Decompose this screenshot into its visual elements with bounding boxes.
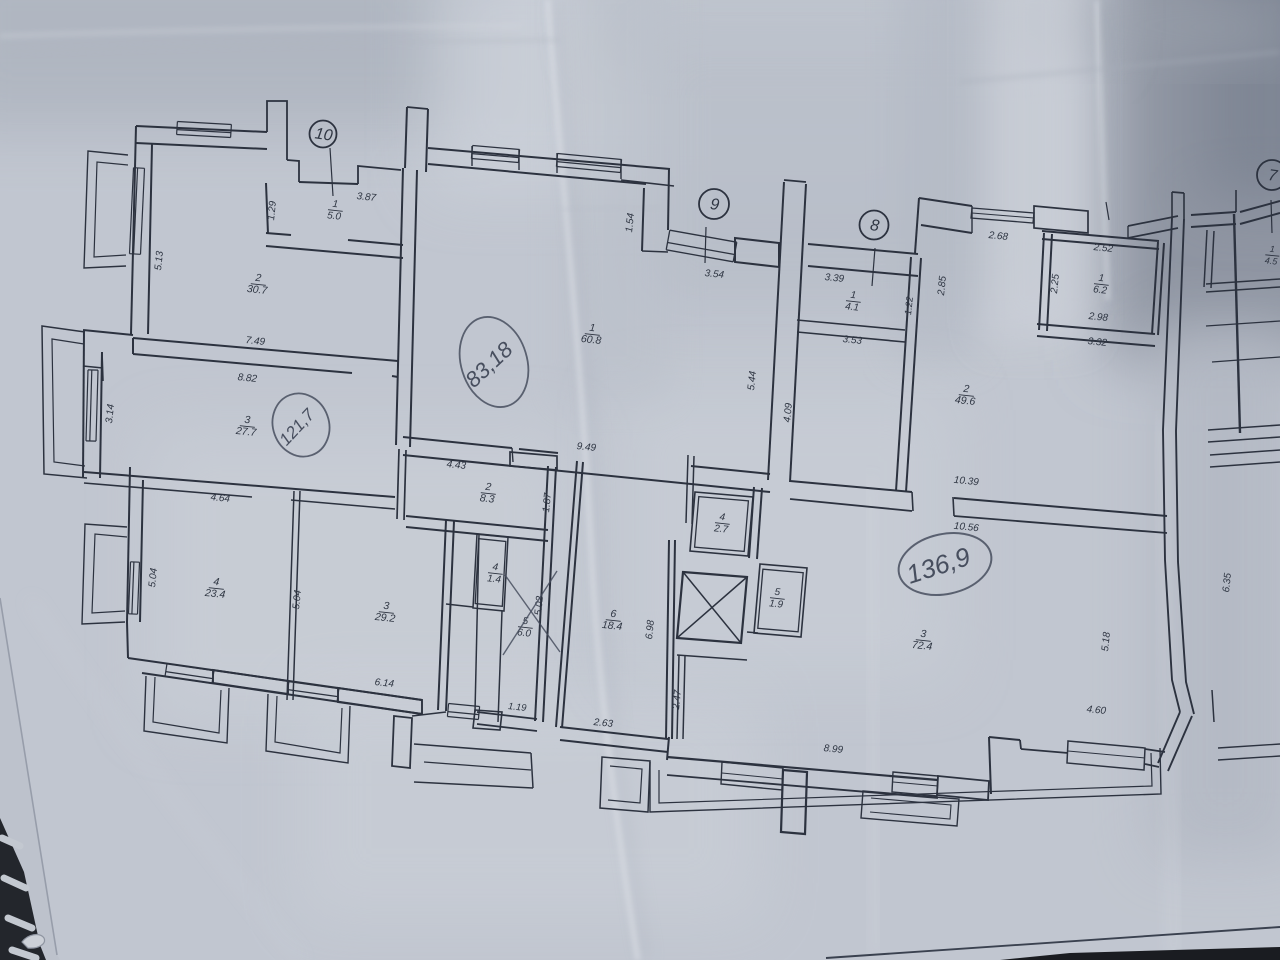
svg-text:60.8: 60.8 <box>580 333 602 347</box>
svg-text:30.7: 30.7 <box>246 283 269 297</box>
svg-text:4.60: 4.60 <box>1086 704 1107 717</box>
svg-text:5.04: 5.04 <box>147 567 160 588</box>
svg-text:9.49: 9.49 <box>576 441 597 454</box>
svg-text:4.64: 4.64 <box>210 492 231 505</box>
svg-text:1.54: 1.54 <box>624 212 637 233</box>
svg-text:1.9: 1.9 <box>769 598 784 610</box>
svg-text:5.0: 5.0 <box>327 210 342 222</box>
svg-text:3.14: 3.14 <box>104 403 117 424</box>
svg-text:10: 10 <box>314 125 334 144</box>
svg-text:3.53: 3.53 <box>842 334 863 347</box>
svg-text:1.29: 1.29 <box>266 200 279 221</box>
svg-text:1: 1 <box>589 322 596 335</box>
svg-text:4.1: 4.1 <box>845 301 860 313</box>
svg-text:7.49: 7.49 <box>245 335 266 348</box>
svg-text:2: 2 <box>484 481 492 494</box>
svg-text:4.09: 4.09 <box>782 402 795 423</box>
svg-text:1.4: 1.4 <box>487 573 502 585</box>
svg-text:29.2: 29.2 <box>373 611 396 625</box>
svg-text:2.85: 2.85 <box>936 275 949 297</box>
svg-text:2.7: 2.7 <box>713 523 729 536</box>
svg-text:2: 2 <box>254 272 262 285</box>
svg-text:6.98: 6.98 <box>644 619 657 640</box>
svg-text:2.25: 2.25 <box>1049 273 1062 295</box>
svg-text:18.4: 18.4 <box>601 619 623 633</box>
svg-text:1: 1 <box>850 290 857 302</box>
svg-text:1.87: 1.87 <box>541 492 554 513</box>
svg-text:3.54: 3.54 <box>704 268 725 281</box>
svg-text:8.3: 8.3 <box>479 492 495 505</box>
svg-text:3.32: 3.32 <box>1087 336 1108 349</box>
svg-text:27.7: 27.7 <box>234 425 258 439</box>
svg-text:1.19: 1.19 <box>507 701 527 714</box>
svg-text:5.04: 5.04 <box>291 589 304 610</box>
svg-text:1: 1 <box>1269 244 1275 254</box>
svg-text:5.13: 5.13 <box>153 250 166 271</box>
svg-text:4.5: 4.5 <box>1264 255 1278 266</box>
svg-text:72.4: 72.4 <box>911 639 933 653</box>
svg-text:8.99: 8.99 <box>823 743 844 756</box>
svg-text:3.87: 3.87 <box>356 191 377 204</box>
svg-text:2.98: 2.98 <box>1087 311 1109 324</box>
svg-text:6.35: 6.35 <box>1221 572 1234 593</box>
svg-text:2.63: 2.63 <box>592 717 614 730</box>
svg-text:1.22: 1.22 <box>903 295 916 315</box>
svg-text:2: 2 <box>962 383 970 396</box>
svg-text:6.14: 6.14 <box>374 677 395 690</box>
svg-text:1: 1 <box>1098 273 1105 285</box>
svg-text:2.47: 2.47 <box>671 689 684 711</box>
svg-text:2.52: 2.52 <box>1092 242 1114 255</box>
svg-text:8.82: 8.82 <box>237 372 258 385</box>
svg-text:4.43: 4.43 <box>446 459 467 472</box>
svg-text:23.4: 23.4 <box>203 587 226 601</box>
svg-text:49.6: 49.6 <box>954 394 976 408</box>
svg-text:6.2: 6.2 <box>1093 284 1108 296</box>
svg-text:5.44: 5.44 <box>746 370 759 391</box>
svg-text:5.18: 5.18 <box>1100 631 1113 652</box>
svg-text:1: 1 <box>332 199 339 211</box>
svg-text:2.68: 2.68 <box>987 230 1009 243</box>
svg-text:3.39: 3.39 <box>824 272 845 285</box>
